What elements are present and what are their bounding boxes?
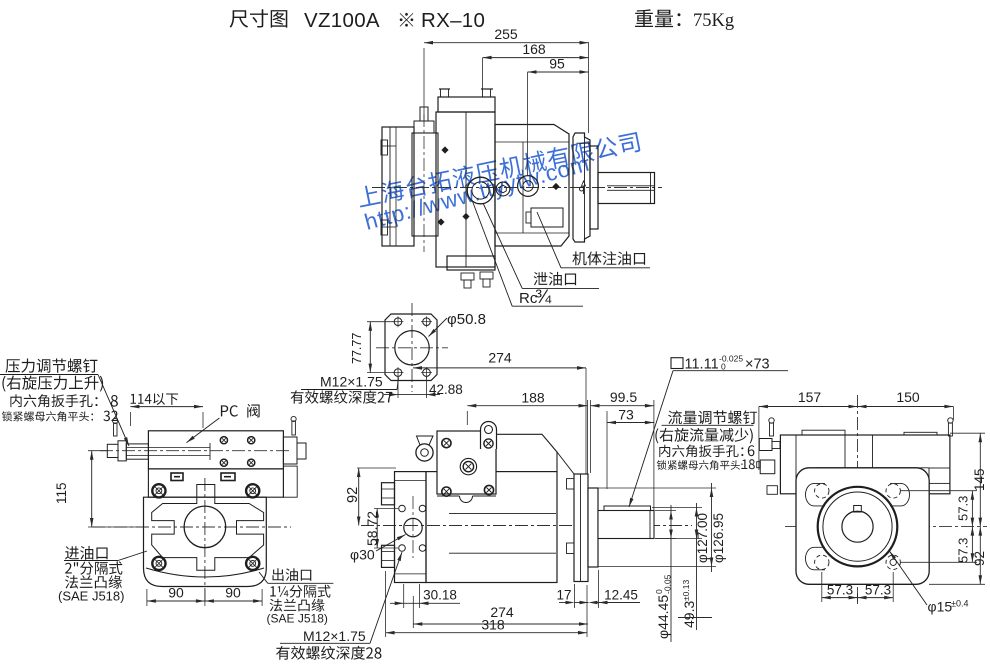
svg-text:¾: ¾ [535, 286, 552, 308]
svg-text:VZ100A: VZ100A [304, 9, 380, 32]
svg-text:φ44.45: φ44.45 [655, 595, 671, 639]
svg-text:99.5: 99.5 [610, 389, 637, 405]
svg-text:±0.4: ±0.4 [951, 599, 968, 609]
svg-text:φ30: φ30 [350, 547, 375, 563]
svg-text:75Kg: 75Kg [693, 11, 734, 31]
svg-text:90: 90 [225, 585, 241, 601]
svg-text:φ50.8: φ50.8 [447, 311, 486, 328]
svg-text:92: 92 [345, 487, 361, 503]
svg-text:115: 115 [54, 482, 69, 504]
svg-text:168: 168 [522, 41, 546, 57]
svg-text:77.77: 77.77 [350, 333, 364, 364]
svg-text:42.88: 42.88 [429, 382, 463, 397]
svg-text:φ15: φ15 [928, 599, 953, 615]
svg-text:318: 318 [481, 617, 505, 633]
svg-text:11.11: 11.11 [685, 357, 719, 373]
svg-text:95: 95 [549, 56, 565, 72]
svg-text:(SAE J518): (SAE J518) [58, 589, 124, 604]
svg-text:150: 150 [896, 389, 920, 405]
svg-text:30.18: 30.18 [423, 588, 457, 603]
svg-text:(SAE J518): (SAE J518) [267, 612, 328, 626]
svg-text:57.3: 57.3 [956, 496, 971, 521]
svg-text:φ126.95: φ126.95 [711, 513, 726, 563]
svg-text:145: 145 [972, 468, 987, 491]
svg-text:×73: ×73 [745, 357, 770, 373]
svg-text:90: 90 [168, 585, 184, 601]
svg-text:±0.13: ±0.13 [681, 580, 691, 601]
svg-text:274: 274 [488, 350, 512, 366]
svg-text:58.72: 58.72 [364, 511, 380, 546]
svg-text:0: 0 [721, 362, 726, 372]
svg-text:255: 255 [494, 26, 518, 42]
svg-text:73: 73 [618, 407, 634, 423]
svg-text:M12×1.75: M12×1.75 [320, 374, 383, 390]
svg-text:57.3: 57.3 [865, 583, 891, 598]
svg-text:57.3: 57.3 [956, 538, 971, 563]
svg-text:49.3: 49.3 [681, 601, 697, 628]
svg-text:157: 157 [798, 389, 822, 405]
svg-text:φ127.00: φ127.00 [695, 513, 710, 563]
svg-text:RX–10: RX–10 [421, 9, 485, 32]
svg-text:-0.05: -0.05 [663, 574, 673, 594]
svg-text:M12×1.75: M12×1.75 [303, 628, 366, 644]
svg-text:12.45: 12.45 [604, 588, 638, 603]
svg-text:17: 17 [556, 588, 571, 603]
svg-text:57.3: 57.3 [827, 583, 853, 598]
svg-text:92: 92 [972, 551, 987, 566]
svg-text:188: 188 [521, 390, 545, 406]
